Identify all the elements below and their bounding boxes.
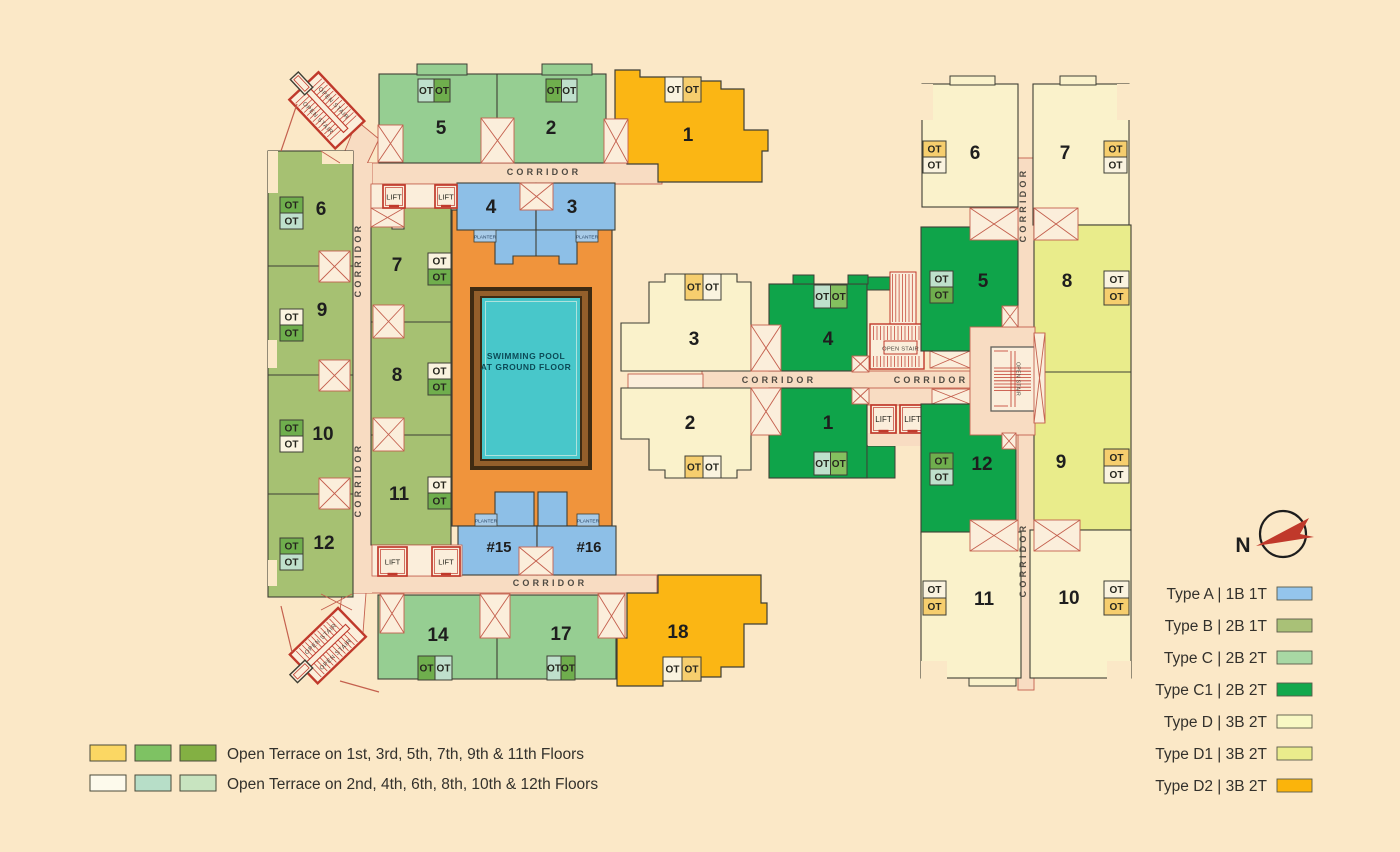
svg-text:12: 12 [971,454,992,475]
svg-text:OT: OT [928,585,942,596]
svg-text:OT: OT [832,459,846,470]
svg-text:OT: OT [685,85,699,96]
svg-text:OT: OT [1110,292,1124,303]
svg-text:6: 6 [316,199,327,220]
svg-text:OT: OT [561,664,575,675]
svg-text:OT: OT [705,463,719,474]
svg-text:OT: OT [815,292,829,303]
svg-text:OT: OT [928,161,942,172]
svg-text:OT: OT [1109,145,1123,156]
svg-text:OT: OT [547,664,561,675]
svg-text:OT: OT [433,367,447,378]
svg-text:OT: OT [1109,161,1123,172]
svg-text:OT: OT [285,329,299,340]
svg-text:4: 4 [486,197,497,218]
svg-text:OT: OT [285,424,299,435]
svg-text:OT: OT [419,86,433,97]
svg-text:OT: OT [832,292,846,303]
svg-text:1: 1 [683,125,694,146]
svg-text:OPEN STAIR: OPEN STAIR [1015,362,1021,396]
svg-text:#16: #16 [576,539,601,556]
svg-text:PLANTER: PLANTER [474,235,497,241]
svg-text:7: 7 [392,255,403,276]
svg-text:7: 7 [1060,143,1071,164]
svg-text:OT: OT [928,145,942,156]
svg-text:Open Terrace on 1st, 3rd, 5th,: Open Terrace on 1st, 3rd, 5th, 7th, 9th … [227,746,584,763]
svg-text:Type A | 1B 1T: Type A | 1B 1T [1166,586,1267,603]
svg-text:OT: OT [1110,585,1124,596]
svg-text:11: 11 [389,484,410,505]
svg-text:LIFT: LIFT [385,557,401,566]
svg-text:PLANTER: PLANTER [576,235,599,241]
svg-text:10: 10 [312,424,333,445]
svg-text:OT: OT [433,481,447,492]
svg-text:OT: OT [1110,275,1124,286]
svg-text:12: 12 [313,533,334,554]
svg-text:OT: OT [433,383,447,394]
svg-text:OT: OT [666,665,680,676]
svg-text:17: 17 [550,624,571,645]
svg-text:N: N [1235,534,1250,557]
svg-text:1: 1 [823,413,834,434]
svg-text:10: 10 [1058,588,1079,609]
svg-text:Type C | 2B 2T: Type C | 2B 2T [1164,650,1268,667]
svg-text:OT: OT [285,558,299,569]
svg-text:OT: OT [935,457,949,468]
svg-text:CORRIDOR: CORRIDOR [353,443,363,518]
svg-text:5: 5 [978,271,989,292]
svg-text:11: 11 [974,589,995,610]
svg-text:PLANTER: PLANTER [577,519,600,525]
svg-text:CORRIDOR: CORRIDOR [507,167,582,177]
svg-text:OT: OT [437,664,451,675]
svg-text:OT: OT [687,463,701,474]
svg-text:#15: #15 [486,539,511,556]
svg-text:Type D2 | 3B 2T: Type D2 | 3B 2T [1155,778,1267,795]
svg-text:OT: OT [433,257,447,268]
svg-text:LIFT: LIFT [386,192,402,201]
svg-text:OT: OT [935,275,949,286]
svg-text:CORRIDOR: CORRIDOR [513,578,588,588]
svg-text:14: 14 [427,625,449,646]
svg-text:OT: OT [285,201,299,212]
svg-text:3: 3 [689,329,700,350]
svg-text:Open Terrace on 2nd, 4th, 6th,: Open Terrace on 2nd, 4th, 6th, 8th, 10th… [227,776,598,793]
svg-text:5: 5 [436,118,447,139]
svg-text:OT: OT [928,602,942,613]
svg-text:Type D1 | 3B 2T: Type D1 | 3B 2T [1155,746,1267,763]
svg-text:OT: OT [285,440,299,451]
svg-text:OT: OT [685,665,699,676]
svg-text:OT: OT [1110,470,1124,481]
svg-text:8: 8 [1062,271,1073,292]
svg-text:OPEN STAIR: OPEN STAIR [882,347,919,353]
svg-text:6: 6 [970,143,981,164]
svg-text:CORRIDOR: CORRIDOR [894,375,969,385]
svg-text:18: 18 [667,622,688,643]
svg-text:Type D | 3B 2T: Type D | 3B 2T [1164,714,1268,731]
svg-text:8: 8 [392,365,403,386]
svg-text:OT: OT [687,283,701,294]
svg-text:2: 2 [685,413,696,434]
svg-text:LIFT: LIFT [904,415,921,424]
svg-text:CORRIDOR: CORRIDOR [1018,523,1028,598]
svg-text:OT: OT [935,473,949,484]
svg-text:Type C1 | 2B 2T: Type C1 | 2B 2T [1155,682,1267,699]
svg-text:OT: OT [1110,602,1124,613]
svg-text:OT: OT [420,664,434,675]
svg-text:OT: OT [1110,453,1124,464]
svg-text:OT: OT [433,273,447,284]
svg-text:OT: OT [547,86,561,97]
svg-text:OT: OT [435,86,449,97]
svg-text:4: 4 [823,329,834,350]
svg-text:OT: OT [562,86,576,97]
svg-text:OT: OT [285,542,299,553]
svg-text:3: 3 [567,197,578,218]
svg-text:LIFT: LIFT [438,192,454,201]
svg-text:OT: OT [935,291,949,302]
svg-text:OT: OT [815,459,829,470]
svg-text:9: 9 [317,300,328,321]
svg-text:AT GROUND FLOOR: AT GROUND FLOOR [481,362,571,372]
svg-text:2: 2 [546,118,557,139]
svg-text:OT: OT [433,497,447,508]
svg-text:PLANTER: PLANTER [475,519,498,525]
svg-text:CORRIDOR: CORRIDOR [1018,168,1028,243]
svg-text:LIFT: LIFT [875,415,892,424]
svg-text:LIFT: LIFT [438,557,454,566]
svg-text:OT: OT [705,283,719,294]
svg-text:SWIMMING POOL: SWIMMING POOL [487,351,565,361]
svg-text:OT: OT [285,217,299,228]
svg-text:Type B | 2B 1T: Type B | 2B 1T [1165,618,1268,635]
svg-text:OT: OT [667,85,681,96]
svg-text:CORRIDOR: CORRIDOR [742,375,817,385]
svg-text:CORRIDOR: CORRIDOR [353,223,363,298]
svg-text:OT: OT [285,313,299,324]
svg-text:9: 9 [1056,452,1067,473]
